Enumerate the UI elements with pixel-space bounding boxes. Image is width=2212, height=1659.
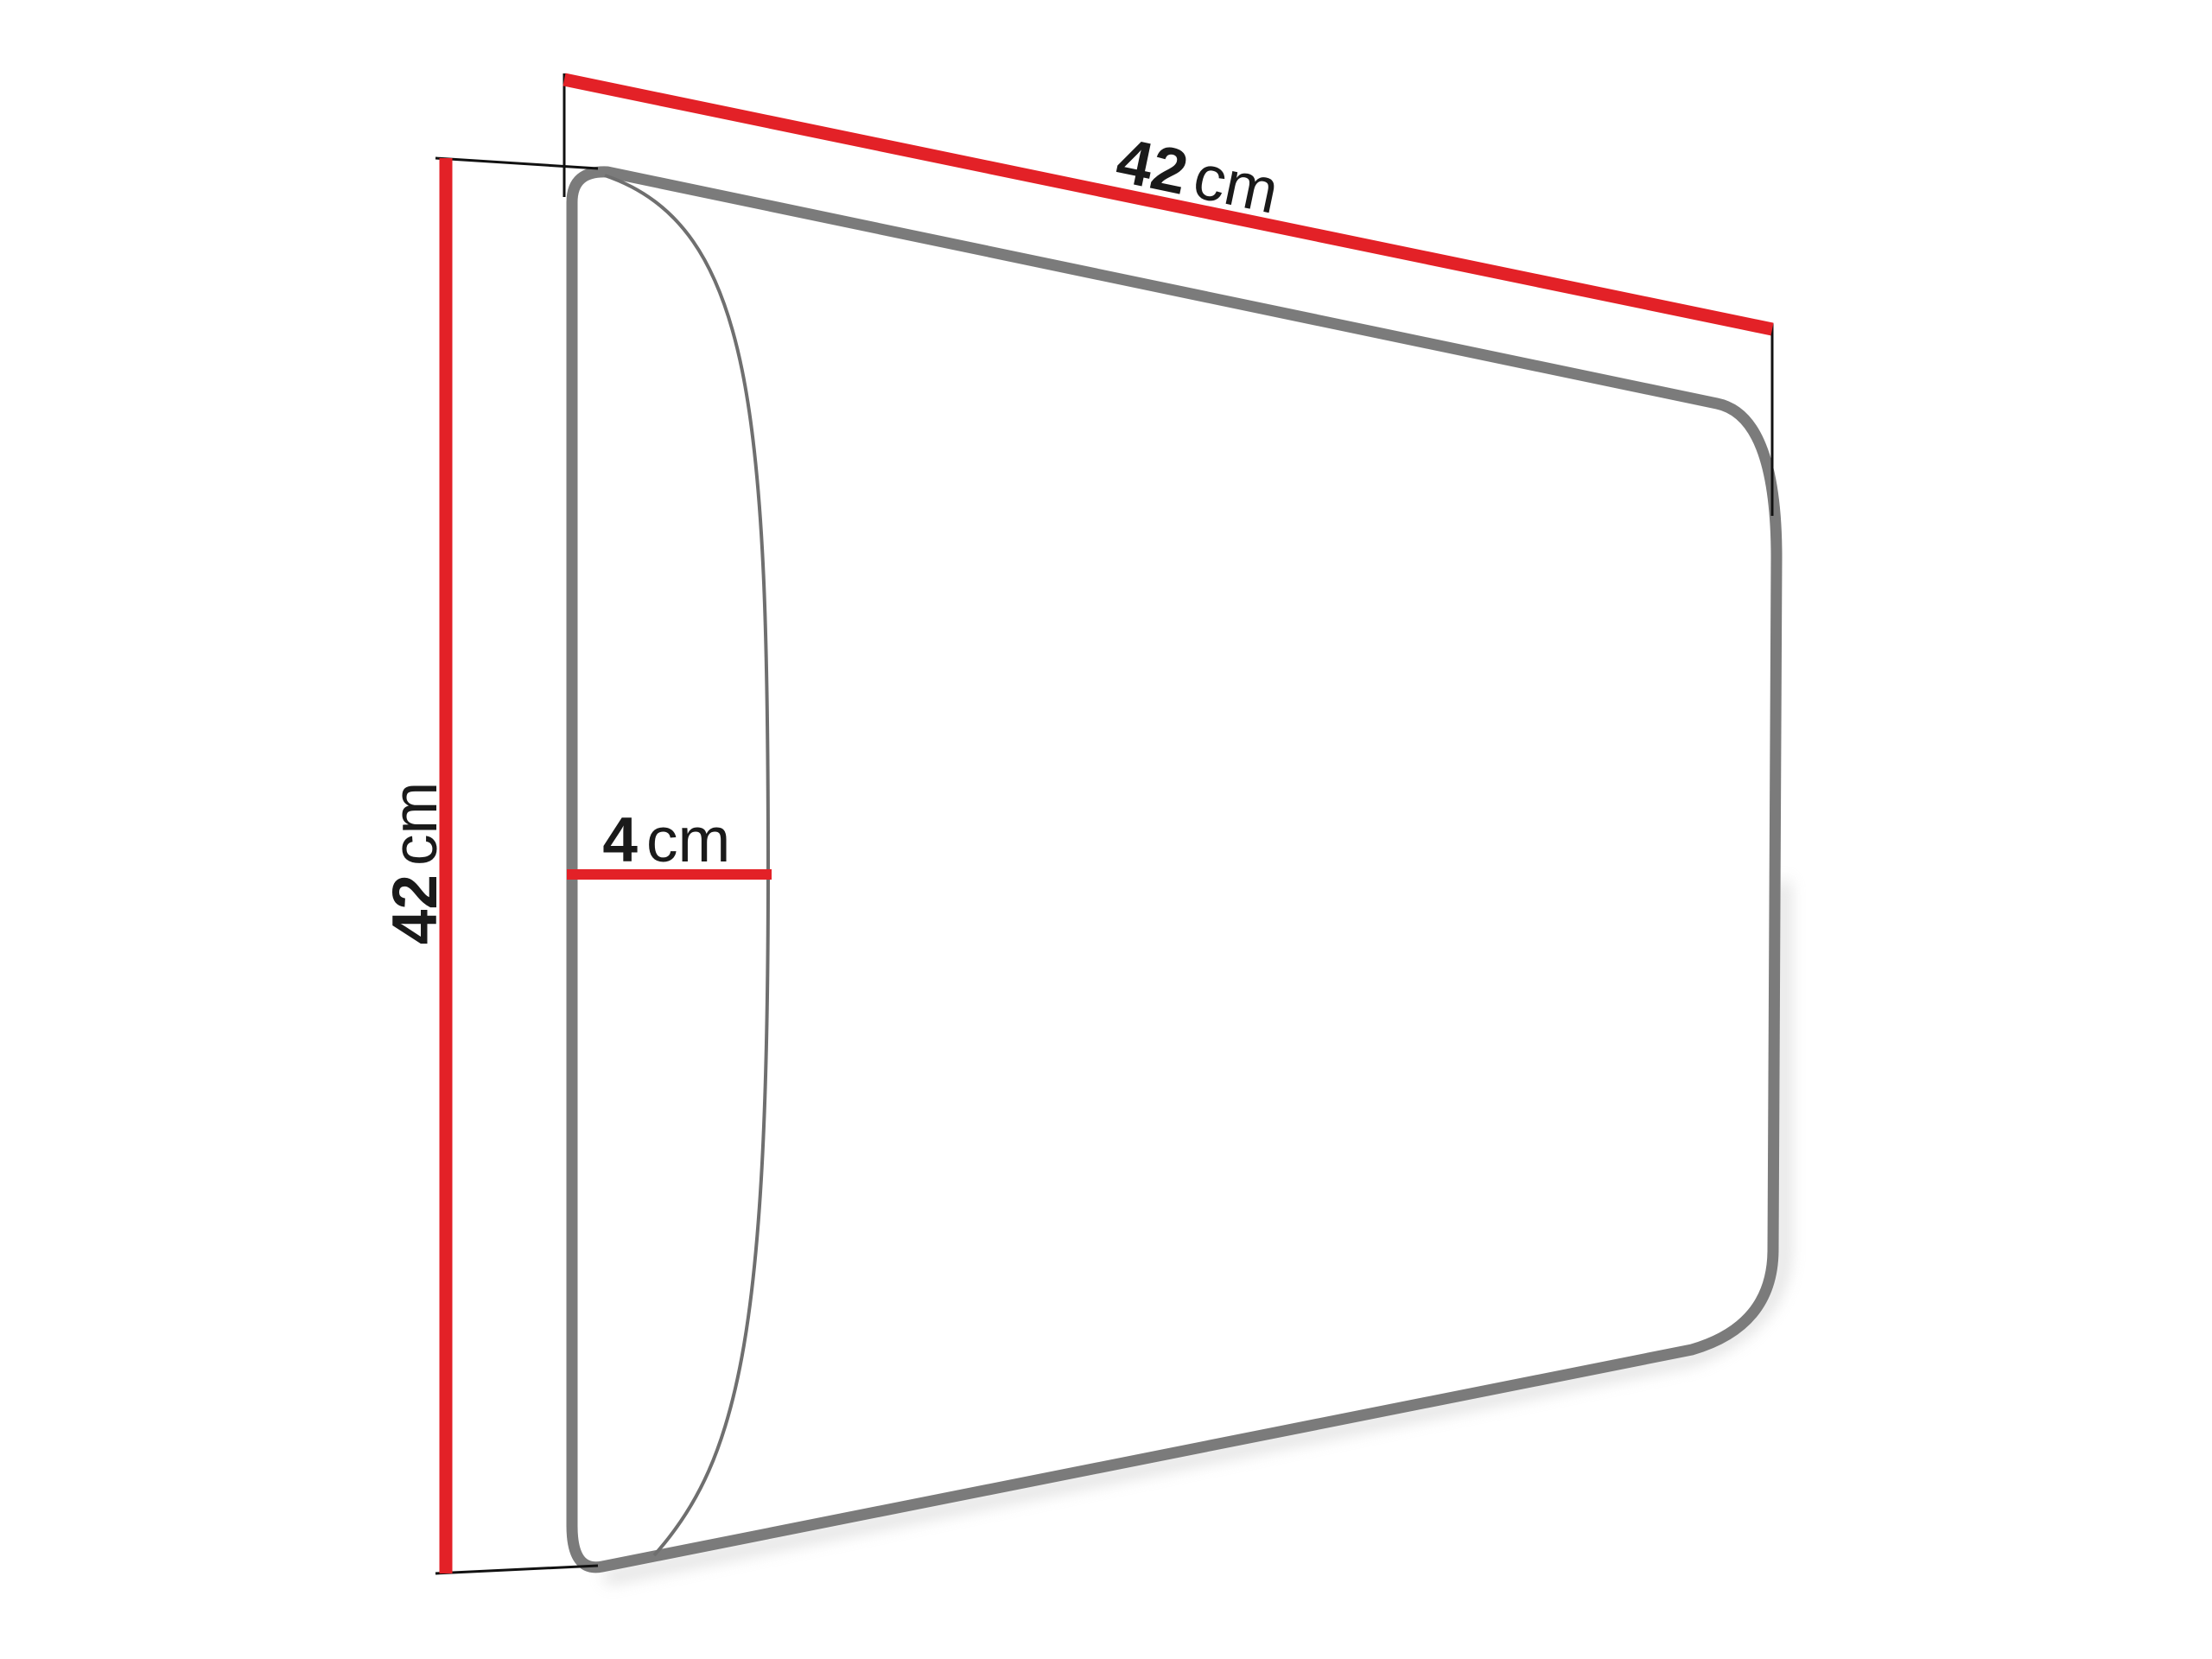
width-value: 42 bbox=[1110, 125, 1193, 208]
width-dimension-label: 42 cm bbox=[1110, 125, 1284, 227]
height-extension-line-bottom bbox=[435, 1566, 598, 1573]
depth-value: 4 bbox=[602, 805, 638, 875]
height-dimension-label: 42 cm bbox=[380, 782, 450, 945]
height-value: 42 bbox=[380, 874, 450, 944]
height-extension-line-top bbox=[435, 158, 598, 168]
depth-unit: cm bbox=[646, 805, 730, 875]
height-unit: cm bbox=[380, 782, 450, 866]
panel-dimension-drawing: 42 cm 42 cm 4 cm bbox=[0, 0, 2212, 1659]
dimension-diagram: 42 cm 42 cm 4 cm bbox=[0, 0, 2212, 1659]
depth-dimension-label: 4 cm bbox=[602, 805, 730, 875]
